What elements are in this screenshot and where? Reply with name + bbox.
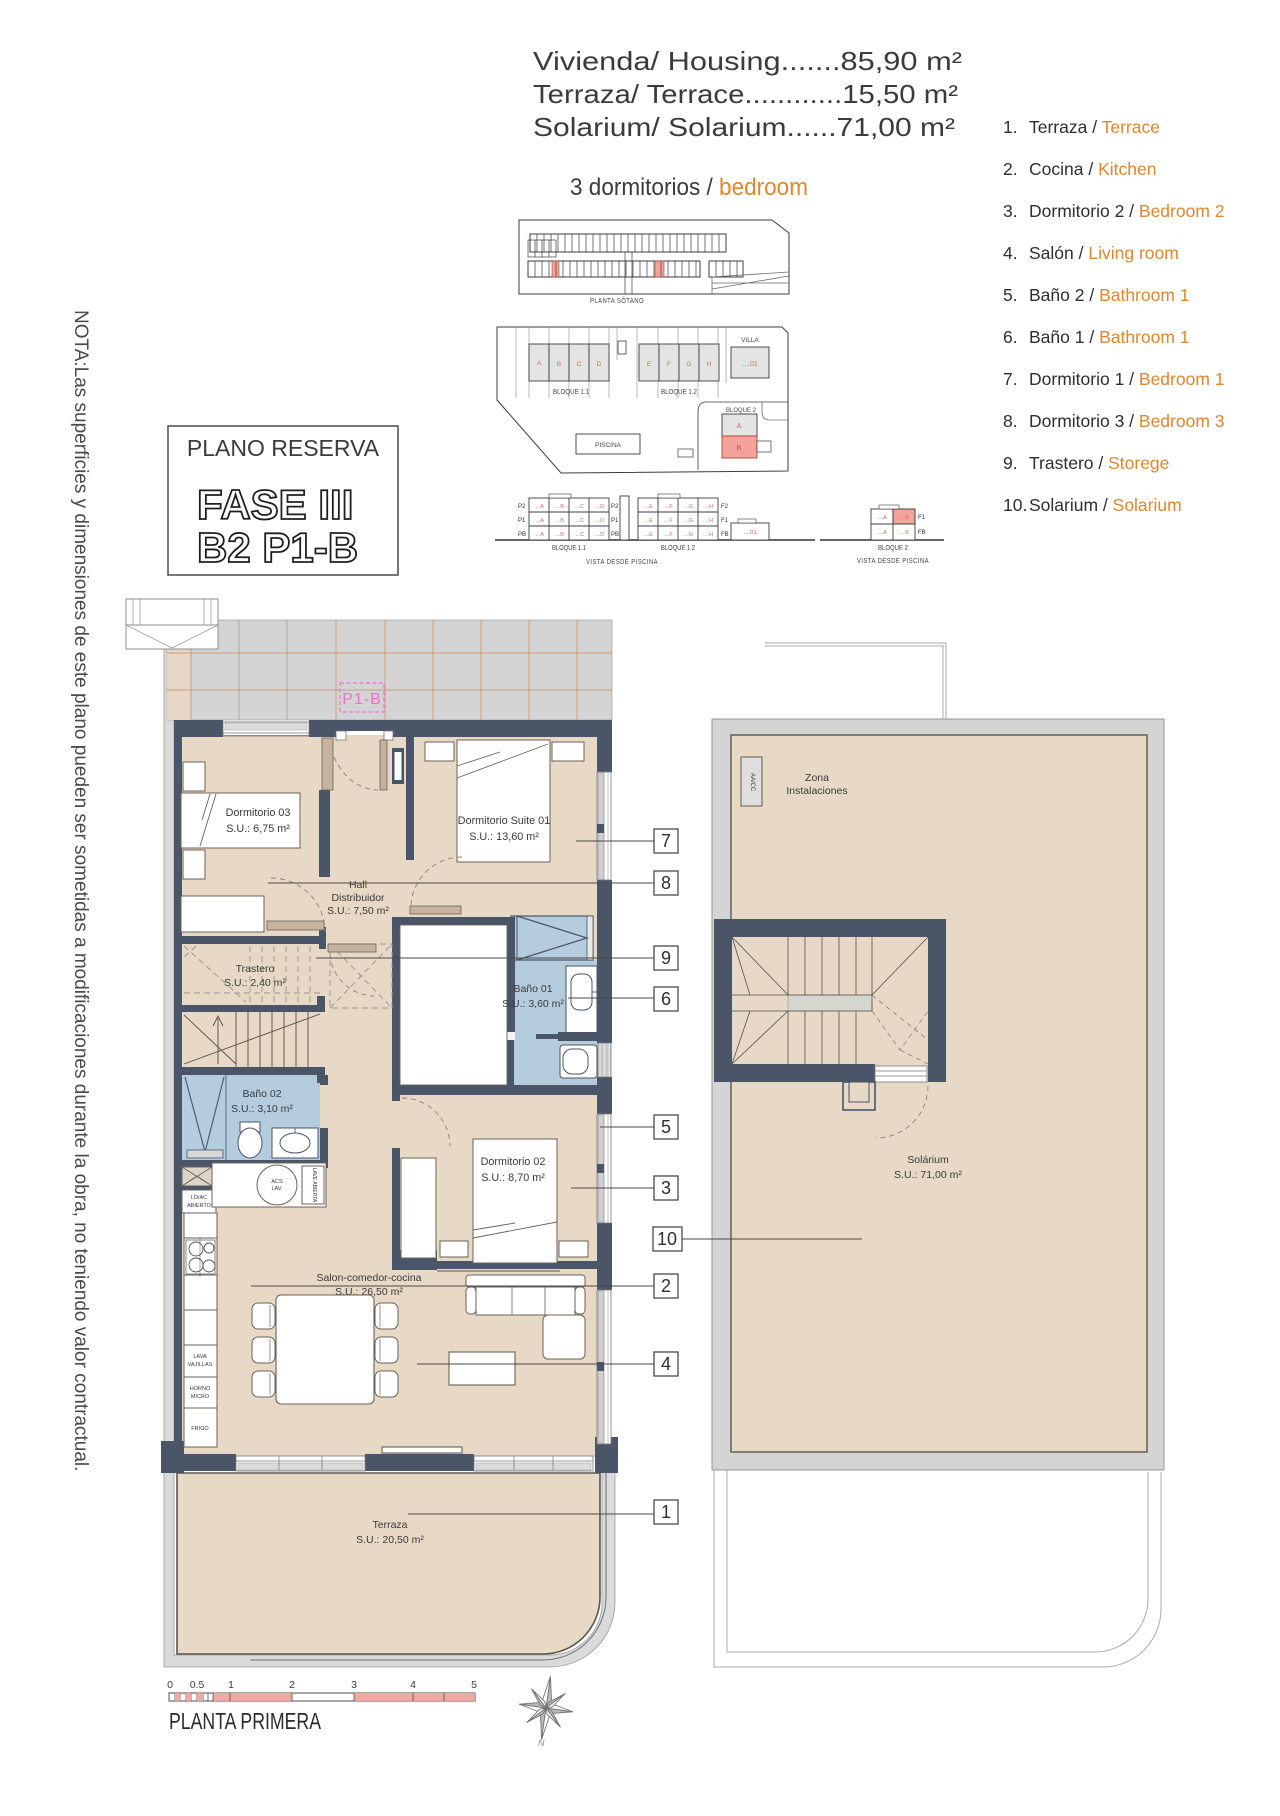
svg-text:BLOQUE 2: BLOQUE 2 (878, 545, 908, 552)
svg-text:10.: 10. (1003, 495, 1027, 515)
svg-text:3.: 3. (1003, 201, 1018, 221)
svg-text:....F: ....F (663, 504, 673, 510)
svg-text:PLANTA PRIMERA: PLANTA PRIMERA (169, 1708, 322, 1734)
svg-text:FASE III: FASE III (197, 481, 353, 528)
svg-text:MICRO: MICRO (191, 1394, 210, 1400)
svg-text:6.: 6. (1003, 327, 1018, 347)
svg-text:Dormitorio 02: Dormitorio 02 (481, 1156, 546, 1168)
svg-text:Dormitorio 3 / Bedroom 3: Dormitorio 3 / Bedroom 3 (1029, 411, 1225, 431)
svg-text:....B: ....B (899, 515, 909, 521)
svg-text:7: 7 (661, 831, 671, 851)
svg-text:....C: ....C (574, 518, 584, 524)
svg-text:A: A (537, 360, 542, 367)
svg-text:Salón / Living room: Salón / Living room (1029, 243, 1179, 263)
svg-text:Terraza/ Terrace............15: Terraza/ Terrace............15,50 m² (533, 79, 958, 109)
svg-text:S.U.: 7,50 m²: S.U.: 7,50 m² (327, 905, 389, 917)
svg-text:LAV.: LAV. (271, 1186, 282, 1192)
svg-text:10: 10 (657, 1229, 677, 1249)
svg-text:....G: ....G (683, 532, 693, 538)
svg-text:....B: ....B (554, 532, 564, 538)
svg-text:3: 3 (661, 1178, 671, 1198)
svg-text:S.U.: 8,70 m²: S.U.: 8,70 m² (481, 1172, 545, 1184)
svg-text:S.U.: 6,75 m²: S.U.: 6,75 m² (226, 823, 290, 835)
svg-text:P1: P1 (518, 518, 526, 524)
svg-text:P2: P2 (611, 504, 619, 510)
svg-text:S.U.: 3,60 m²: S.U.: 3,60 m² (502, 998, 564, 1010)
svg-text:A: A (737, 423, 742, 430)
svg-text:Baño 1 / Bathroom 1: Baño 1 / Bathroom 1 (1029, 327, 1190, 347)
svg-text:Baño 02: Baño 02 (242, 1088, 281, 1100)
svg-text:E: E (647, 361, 652, 368)
svg-text:BLOQUE 1.1: BLOQUE 1.1 (552, 545, 586, 552)
svg-text:....B: ....B (554, 518, 564, 524)
svg-text:....E: ....E (643, 532, 653, 538)
svg-text:....C: ....C (574, 504, 584, 510)
svg-text:1: 1 (661, 1502, 671, 1522)
svg-text:PLANTA SÓTANO: PLANTA SÓTANO (590, 296, 644, 305)
svg-text:BLOQUE 1.2: BLOQUE 1.2 (661, 545, 695, 552)
svg-text:FB: FB (918, 530, 926, 536)
svg-text:Vivienda/ Housing.......85,90: Vivienda/ Housing.......85,90 m² (533, 46, 962, 76)
svg-text:....H: ....H (703, 504, 713, 510)
svg-text:P2: P2 (518, 504, 526, 510)
svg-text:....B: ....B (899, 530, 909, 536)
svg-text:LAVA: LAVA (193, 1354, 207, 1360)
svg-text:F: F (667, 361, 671, 368)
svg-text:Solarium / Solarium: Solarium / Solarium (1029, 495, 1182, 515)
svg-text:S.U.: 13,60 m²: S.U.: 13,60 m² (469, 831, 539, 843)
svg-text:Trastero / Storege: Trastero / Storege (1029, 453, 1169, 473)
svg-text:BLOQUE 1.1: BLOQUE 1.1 (553, 387, 589, 396)
svg-text:PB: PB (518, 532, 526, 538)
svg-text:Hall: Hall (349, 879, 367, 891)
svg-text:....G: ....G (683, 518, 693, 524)
svg-text:....A: ....A (534, 532, 544, 538)
svg-text:....F: ....F (663, 532, 673, 538)
svg-text:PLANO RESERVA: PLANO RESERVA (187, 435, 380, 461)
svg-text:C: C (577, 361, 582, 368)
svg-text:Baño 2 / Bathroom 1: Baño 2 / Bathroom 1 (1029, 285, 1190, 305)
svg-text:0: 0 (167, 1679, 173, 1691)
svg-text:D: D (597, 361, 602, 368)
svg-text:Instalaciones: Instalaciones (786, 785, 847, 797)
svg-text:FB: FB (721, 532, 729, 538)
svg-text:FRIGO: FRIGO (191, 1426, 209, 1432)
svg-text:H: H (707, 361, 712, 368)
svg-text:Solárium: Solárium (907, 1154, 949, 1166)
svg-text:....D: ....D (594, 532, 604, 538)
svg-text:HORNO: HORNO (190, 1386, 211, 1392)
svg-text:S.U.: 20,50 m²: S.U.: 20,50 m² (356, 1534, 424, 1546)
svg-text:Solarium/ Solarium......71,00: Solarium/ Solarium......71,00 m² (533, 112, 955, 142)
svg-text:9: 9 (661, 948, 671, 968)
svg-text:Baño 01: Baño 01 (513, 983, 552, 995)
svg-text:....C: ....C (574, 532, 584, 538)
svg-text:Zona: Zona (805, 772, 829, 784)
svg-text:....E: ....E (643, 518, 653, 524)
svg-text:....G: ....G (683, 504, 693, 510)
svg-text:....A: ....A (534, 504, 544, 510)
svg-text:Trastero: Trastero (236, 963, 275, 975)
svg-text:5.: 5. (1003, 285, 1018, 305)
svg-text:S.U.: 3,10 m²: S.U.: 3,10 m² (231, 1103, 293, 1115)
svg-text:....A: ....A (877, 515, 887, 521)
svg-text:....01: ....01 (743, 530, 757, 536)
svg-text:....H: ....H (703, 532, 713, 538)
svg-text:3 dormitorios / bedroom: 3 dormitorios / bedroom (570, 174, 808, 201)
svg-text:Distribuidor: Distribuidor (331, 892, 385, 904)
svg-text:Terraza: Terraza (372, 1519, 407, 1531)
svg-text:LD/AC: LD/AC (191, 1195, 207, 1201)
svg-text:ABIERTO: ABIERTO (187, 1203, 212, 1209)
svg-text:S.U.: 71,00 m²: S.U.: 71,00 m² (894, 1169, 962, 1181)
svg-text:VISTA DESDE PISCINA: VISTA DESDE PISCINA (857, 558, 929, 565)
svg-text:....A: ....A (534, 518, 544, 524)
svg-text:Dormitorio Suite 01: Dormitorio Suite 01 (458, 815, 550, 827)
svg-text:....D: ....D (594, 504, 604, 510)
svg-text:S.U.: 2,40 m²: S.U.: 2,40 m² (224, 977, 286, 989)
svg-text:BLOQUE 2: BLOQUE 2 (726, 407, 756, 414)
svg-text:2: 2 (289, 1679, 295, 1691)
svg-text:0.5: 0.5 (190, 1679, 205, 1691)
svg-text:....E: ....E (643, 504, 653, 510)
svg-text:8: 8 (661, 873, 671, 893)
svg-text:2: 2 (661, 1276, 671, 1296)
svg-text:B2 P1-B: B2 P1-B (197, 524, 358, 571)
svg-text:F1: F1 (721, 518, 729, 524)
svg-text:VISTA DESDE PISCINA: VISTA DESDE PISCINA (586, 559, 658, 566)
svg-text:PB: PB (611, 532, 619, 538)
svg-text:AA/CC: AA/CC (749, 773, 755, 792)
svg-text:2.: 2. (1003, 159, 1018, 179)
svg-text:8.: 8. (1003, 411, 1018, 431)
svg-text:....F: ....F (663, 518, 673, 524)
svg-text:....B: ....B (554, 504, 564, 510)
svg-text:4.: 4. (1003, 243, 1018, 263)
svg-text:4: 4 (410, 1679, 416, 1691)
svg-text:BLOQUE 1.2: BLOQUE 1.2 (661, 387, 697, 396)
svg-text:3: 3 (351, 1679, 357, 1691)
svg-text:1.: 1. (1003, 117, 1018, 137)
svg-text:LAVE ABIERTA: LAVE ABIERTA (311, 1168, 317, 1203)
svg-text:....H: ....H (703, 518, 713, 524)
svg-text:N: N (538, 1738, 545, 1748)
svg-text:B: B (557, 361, 561, 368)
svg-text:....D: ....D (594, 518, 604, 524)
svg-text:PISCINA: PISCINA (595, 442, 622, 449)
svg-text:B: B (737, 445, 742, 452)
svg-text:NOTA:Las superficies y dimensi: NOTA:Las superficies y dimensiones de es… (70, 310, 91, 1471)
svg-text:1: 1 (228, 1679, 234, 1691)
svg-text:F2: F2 (721, 504, 729, 510)
svg-text:5: 5 (661, 1117, 671, 1137)
svg-text:G: G (686, 361, 691, 368)
svg-text:Dormitorio 03: Dormitorio 03 (226, 807, 291, 819)
svg-text:4: 4 (661, 1354, 671, 1374)
svg-text:Cocina / Kitchen: Cocina / Kitchen (1029, 159, 1156, 179)
svg-text:Terraza / Terrace: Terraza / Terrace (1029, 117, 1160, 137)
svg-text:9.: 9. (1003, 453, 1018, 473)
svg-text:....01: ....01 (742, 361, 758, 368)
svg-text:F1: F1 (918, 515, 926, 521)
svg-text:5: 5 (471, 1679, 477, 1691)
svg-text:VILLA: VILLA (741, 337, 759, 344)
svg-text:7.: 7. (1003, 369, 1018, 389)
svg-text:VAJILLAS: VAJILLAS (188, 1362, 213, 1368)
svg-text:P1: P1 (611, 518, 619, 524)
svg-text:P1-B: P1-B (342, 691, 382, 708)
svg-text:Dormitorio 1 / Bedroom 1: Dormitorio 1 / Bedroom 1 (1029, 369, 1225, 389)
svg-text:Dormitorio 2 / Bedroom 2: Dormitorio 2 / Bedroom 2 (1029, 201, 1225, 221)
svg-text:6: 6 (661, 989, 671, 1009)
svg-text:Salon-comedor-cocina: Salon-comedor-cocina (316, 1272, 421, 1284)
svg-text:ACS: ACS (271, 1179, 283, 1185)
svg-text:....A: ....A (877, 530, 887, 536)
